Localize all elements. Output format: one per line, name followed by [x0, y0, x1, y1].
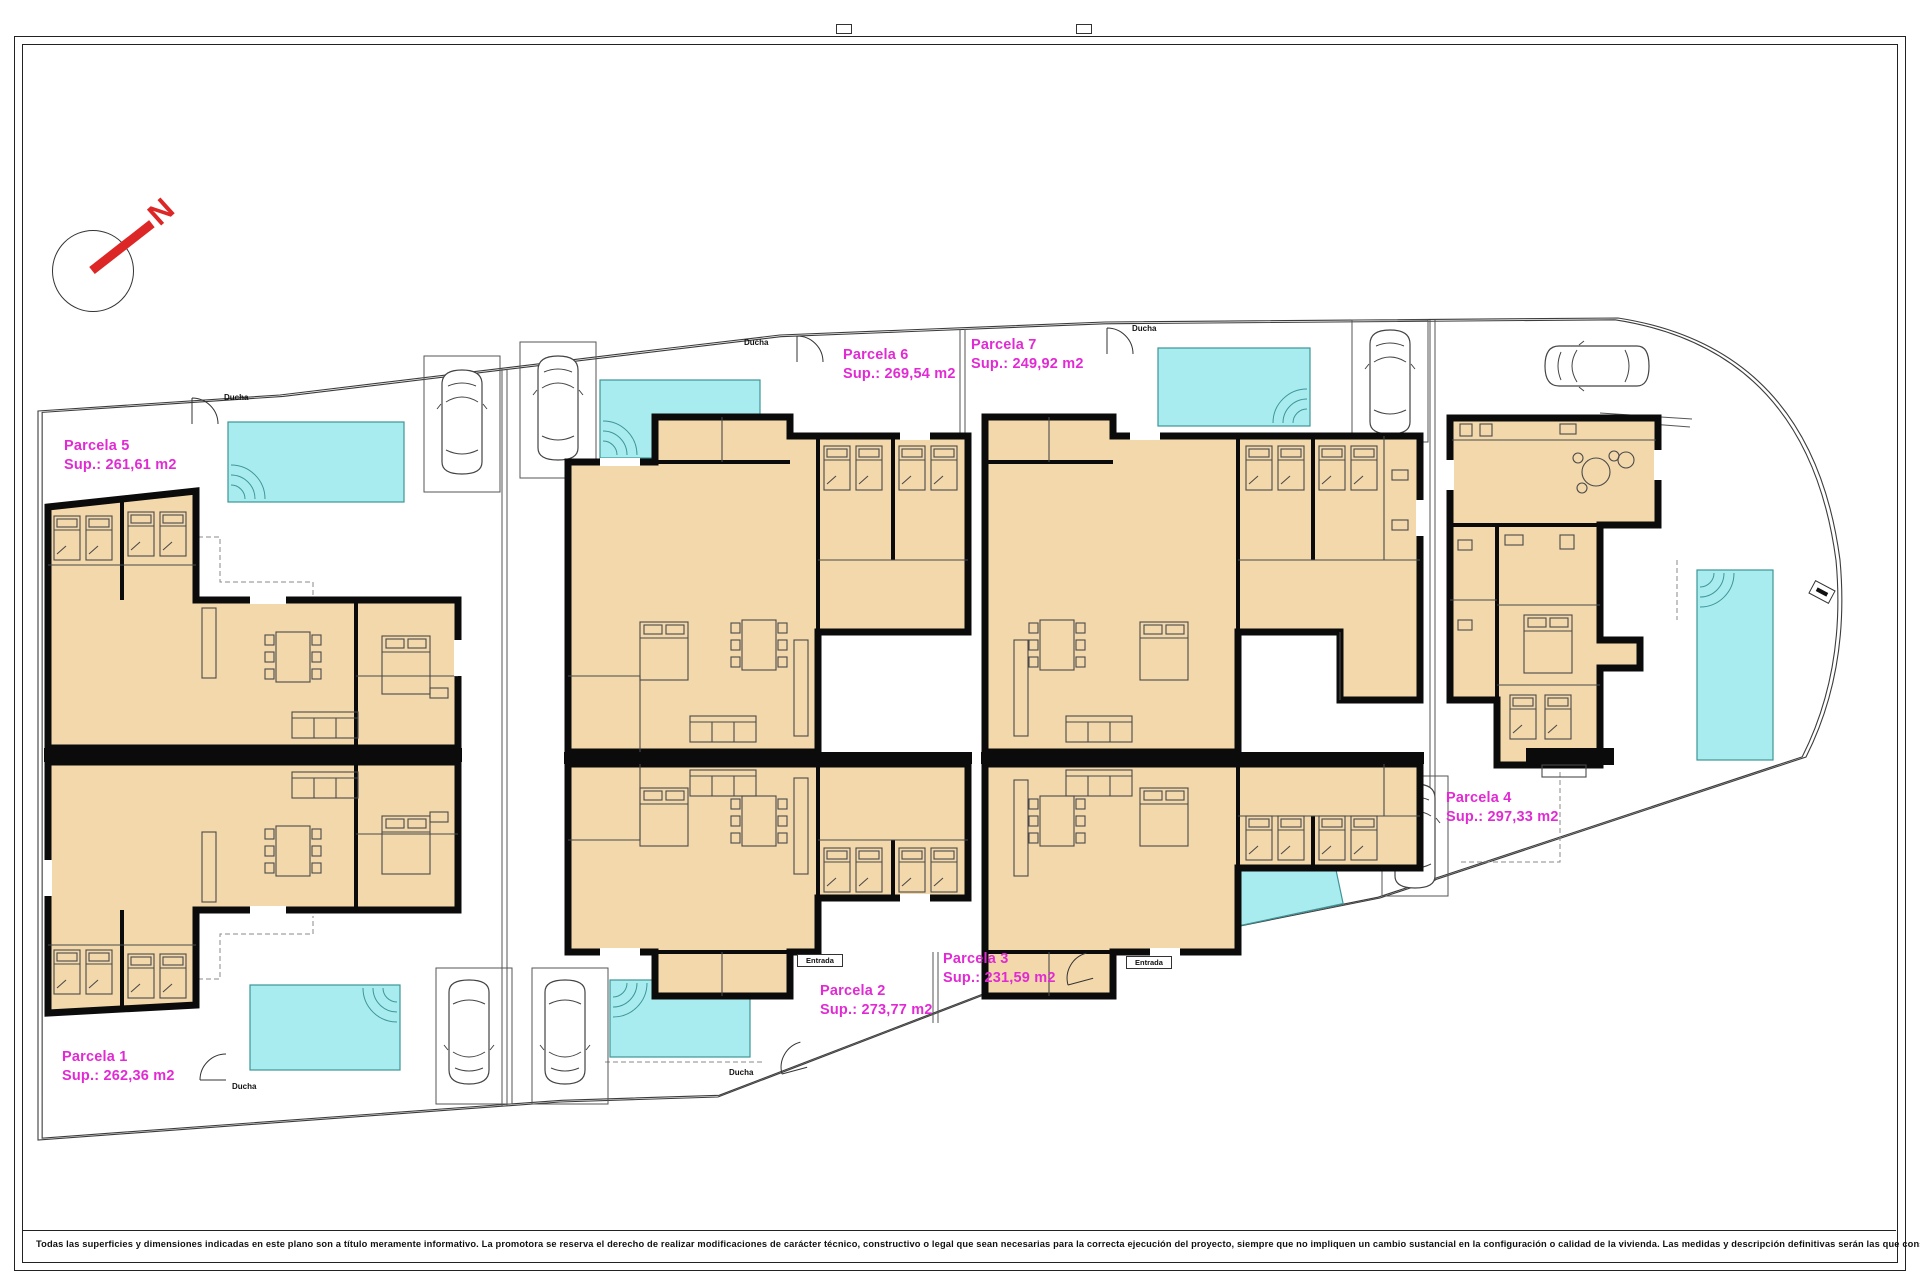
car-icon	[533, 356, 583, 460]
north-arrow: N	[46, 182, 206, 302]
car-icon	[437, 370, 487, 474]
parcel-area: Sup.: 261,61 m2	[64, 456, 177, 475]
party-wall	[981, 752, 1424, 764]
shower-label: Ducha	[224, 393, 248, 402]
parcel-name: Parcela 6	[843, 346, 956, 365]
pool-parcela-1	[250, 985, 400, 1070]
pool-parcela-4	[1697, 570, 1773, 760]
shower-label: Ducha	[729, 1068, 753, 1077]
parcel-area: Sup.: 249,92 m2	[971, 355, 1084, 374]
parcel-area: Sup.: 269,54 m2	[843, 365, 956, 384]
gate-door-arc	[1107, 328, 1133, 354]
car-icon	[1545, 341, 1649, 391]
shower-label: Ducha	[1132, 324, 1156, 333]
parcel-label-4: Parcela 4 Sup.: 297,33 m2	[1446, 789, 1559, 827]
shower-label: Ducha	[744, 338, 768, 347]
parcel-name: Parcela 2	[820, 982, 933, 1001]
car-icon	[444, 980, 494, 1084]
parcel-name: Parcela 4	[1446, 789, 1559, 808]
entrance-label: Entrada	[1126, 956, 1172, 969]
parcel-area: Sup.: 273,77 m2	[820, 1001, 933, 1020]
building-parcela-1	[44, 762, 458, 1013]
building-parcela-5	[48, 491, 462, 748]
car-icon	[1365, 330, 1415, 434]
parcel-area: Sup.: 297,33 m2	[1446, 808, 1559, 827]
parcel-label-6: Parcela 6 Sup.: 269,54 m2	[843, 346, 956, 384]
parcel-label-7: Parcela 7 Sup.: 249,92 m2	[971, 336, 1084, 374]
party-wall	[564, 752, 972, 764]
parcel-label-1: Parcela 1 Sup.: 262,36 m2	[62, 1048, 175, 1086]
party-wall	[44, 748, 462, 762]
site-plan-drawing	[0, 0, 1920, 1280]
gate-door-arc	[200, 1054, 226, 1080]
building-parcela-7	[985, 417, 1424, 752]
building-parcela-6	[568, 417, 968, 752]
parcel-name: Parcela 7	[971, 336, 1084, 355]
parcel-label-3: Parcela 3 Sup.: 231,59 m2	[943, 950, 1056, 988]
building-parcela-2	[568, 764, 968, 996]
parcel-name: Parcela 5	[64, 437, 177, 456]
building-parcela-4	[1446, 418, 1662, 777]
parcel-name: Parcela 3	[943, 950, 1056, 969]
parcel-area: Sup.: 231,59 m2	[943, 969, 1056, 988]
car-icon	[540, 980, 590, 1084]
shower-label: Ducha	[232, 1082, 256, 1091]
parcel-area: Sup.: 262,36 m2	[62, 1067, 175, 1086]
pool-parcela-5	[228, 422, 404, 502]
disclaimer-text: Todas las superficies y dimensiones indi…	[36, 1239, 1884, 1249]
parcel-label-5: Parcela 5 Sup.: 261,61 m2	[64, 437, 177, 475]
gate-door-arc	[797, 336, 823, 362]
entrance-label: Entrada	[797, 954, 843, 967]
parcel-label-2: Parcela 2 Sup.: 273,77 m2	[820, 982, 933, 1020]
parcel-name: Parcela 1	[62, 1048, 175, 1067]
pool-parcela-7	[1158, 348, 1310, 426]
